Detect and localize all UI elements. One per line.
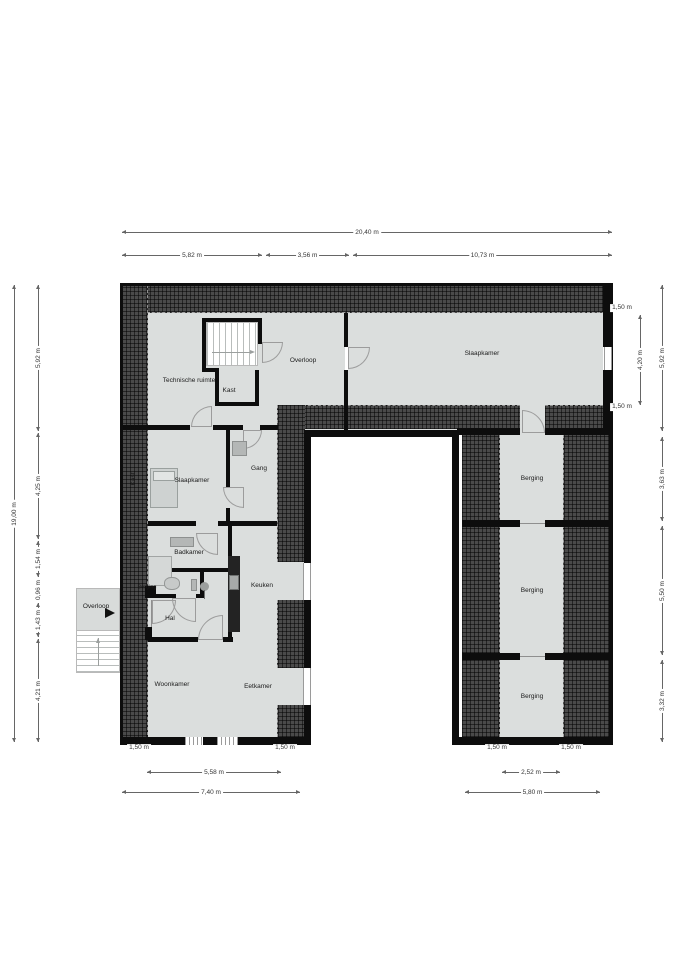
wall bbox=[344, 370, 348, 430]
room-label: Berging bbox=[521, 476, 543, 483]
wall bbox=[603, 285, 612, 347]
room-label: Badkamer bbox=[174, 550, 204, 557]
dimension-label: 5,58 m bbox=[202, 769, 226, 777]
stairs-arrow-head-icon bbox=[250, 350, 255, 354]
dimension-arrow-icon bbox=[36, 535, 40, 539]
wall bbox=[226, 430, 230, 487]
dimension-arrow-icon bbox=[36, 633, 40, 637]
room-label: Woonkamer bbox=[155, 682, 190, 689]
dimension-arrow-icon bbox=[36, 541, 40, 545]
stairs-direction-arrow bbox=[212, 352, 250, 353]
wall bbox=[215, 402, 259, 406]
wall bbox=[255, 370, 259, 406]
room-label: Gang bbox=[251, 466, 267, 473]
dimension-label: 1,43 m bbox=[35, 608, 43, 632]
dimension-arrow-icon bbox=[122, 253, 126, 257]
room-label: Technische ruimte bbox=[163, 378, 215, 385]
dimension-arrow-icon bbox=[660, 651, 664, 655]
dimension-arrow-icon bbox=[36, 573, 40, 577]
door-leaf-line bbox=[520, 656, 545, 657]
wall bbox=[452, 430, 459, 745]
dimension-arrow-icon bbox=[296, 790, 300, 794]
dimension-arrow-icon bbox=[36, 738, 40, 742]
room-label: Slaapkamer bbox=[175, 478, 210, 485]
wall bbox=[218, 521, 277, 526]
dimension-label: 3,56 m bbox=[296, 252, 320, 260]
stairs-arrow-head-icon bbox=[96, 638, 100, 643]
room-label: Eetkamer bbox=[244, 684, 272, 691]
room-label: Berging bbox=[521, 694, 543, 701]
dimension-label: 0,96 m bbox=[35, 578, 43, 602]
wall bbox=[305, 430, 455, 437]
room-label: Kast bbox=[222, 388, 235, 395]
dimension-arrow-icon bbox=[660, 526, 664, 530]
floor-plan-canvas: Technische ruimteKastOverloopSlaapkamerK… bbox=[0, 0, 679, 960]
dimension-label: 5,50 m bbox=[659, 579, 667, 603]
dimension-label: 3,63 m bbox=[659, 467, 667, 491]
dimension-arrow-icon bbox=[266, 253, 270, 257]
dimension-arrow-icon bbox=[638, 315, 642, 319]
dimension-label: 1,54 m bbox=[35, 547, 43, 571]
wall bbox=[215, 370, 219, 406]
dimension-text: 1,50 m bbox=[485, 744, 509, 752]
dimension-label: 4,20 m bbox=[637, 348, 645, 372]
room-label: Slaapkamer bbox=[465, 351, 500, 358]
dimension-label: 5,82 m bbox=[180, 252, 204, 260]
wall bbox=[148, 637, 198, 642]
room-label: Berging bbox=[521, 588, 543, 595]
dimension-text: 1,50 m bbox=[273, 744, 297, 752]
low-headroom-hatch bbox=[563, 435, 610, 737]
dimension-text: 1,50 m bbox=[610, 304, 634, 312]
dimension-label: 5,92 m bbox=[659, 346, 667, 370]
wall bbox=[457, 428, 520, 435]
window bbox=[303, 668, 311, 705]
dimension-arrow-icon bbox=[258, 253, 262, 257]
dimension-label: 7,40 m bbox=[199, 789, 223, 797]
dimension-arrow-icon bbox=[660, 517, 664, 521]
low-headroom-hatch bbox=[277, 705, 305, 737]
wall bbox=[223, 637, 233, 642]
dimension-text: 1,50 m bbox=[610, 403, 634, 411]
low-headroom-hatch bbox=[122, 285, 148, 740]
dimension-arrow-icon bbox=[608, 253, 612, 257]
dimension-arrow-icon bbox=[353, 253, 357, 257]
wall bbox=[120, 283, 612, 286]
dimension-arrow-icon bbox=[596, 790, 600, 794]
dimension-arrow-icon bbox=[608, 230, 612, 234]
dimension-arrow-icon bbox=[36, 285, 40, 289]
dimension-text: 1,50 m bbox=[127, 744, 151, 752]
wall bbox=[462, 653, 520, 660]
window bbox=[303, 563, 311, 600]
wall bbox=[545, 428, 610, 435]
wall bbox=[260, 425, 278, 430]
wall bbox=[120, 283, 123, 745]
dimension-arrow-icon bbox=[660, 427, 664, 431]
dimension-arrow-icon bbox=[12, 738, 16, 742]
dimension-label: 5,80 m bbox=[521, 789, 545, 797]
dimension-arrow-icon bbox=[660, 660, 664, 664]
furniture-cabinet bbox=[232, 441, 247, 456]
furniture-pedestal-stem bbox=[204, 590, 205, 599]
dimension-label: 19,00 m bbox=[11, 500, 19, 528]
room-label: Keuken bbox=[251, 583, 273, 590]
room-label: Kast bbox=[131, 472, 138, 485]
door-leaf-line bbox=[520, 523, 545, 524]
dimension-arrow-icon bbox=[556, 770, 560, 774]
dimension-arrow-icon bbox=[660, 738, 664, 742]
window bbox=[185, 737, 203, 745]
wall bbox=[304, 430, 311, 563]
dimension-label: 4,21 m bbox=[35, 679, 43, 703]
dimension-arrow-icon bbox=[660, 437, 664, 441]
dimension-arrow-icon bbox=[122, 230, 126, 234]
dimension-arrow-icon bbox=[660, 285, 664, 289]
dimension-text: 1,50 m bbox=[559, 744, 583, 752]
wall bbox=[462, 520, 520, 527]
furniture-stove bbox=[229, 575, 239, 590]
room-label: Berging bbox=[138, 585, 157, 591]
dimension-label: 5,92 m bbox=[35, 346, 43, 370]
low-headroom-hatch bbox=[277, 405, 305, 562]
room-label: Overloop bbox=[290, 358, 316, 365]
wall bbox=[545, 653, 610, 660]
dimension-label: 20,40 m bbox=[353, 229, 381, 237]
furniture-pillow bbox=[153, 471, 175, 481]
low-headroom-hatch bbox=[277, 600, 305, 668]
window bbox=[604, 347, 612, 370]
dimension-arrow-icon bbox=[36, 603, 40, 607]
wall bbox=[545, 520, 610, 527]
dimension-arrow-icon bbox=[36, 427, 40, 431]
wall bbox=[344, 313, 348, 347]
room-label: Hal bbox=[165, 616, 175, 623]
dimension-arrow-icon bbox=[502, 770, 506, 774]
wall bbox=[226, 508, 230, 522]
low-headroom-hatch bbox=[122, 285, 610, 313]
wall bbox=[603, 370, 612, 430]
furniture-toilet-sink bbox=[191, 579, 197, 591]
dimension-label: 3,32 m bbox=[659, 689, 667, 713]
dimension-label: 2,52 m bbox=[519, 769, 543, 777]
dimension-label: 4,25 m bbox=[35, 474, 43, 498]
wall bbox=[304, 705, 311, 745]
wall bbox=[145, 627, 152, 640]
wall bbox=[455, 737, 612, 745]
dimension-arrow-icon bbox=[638, 401, 642, 405]
low-headroom-hatch bbox=[278, 405, 520, 429]
window bbox=[217, 737, 238, 745]
furniture-kitchen-counter bbox=[228, 556, 240, 632]
dimension-arrow-icon bbox=[36, 433, 40, 437]
dimension-arrow-icon bbox=[465, 790, 469, 794]
dimension-arrow-icon bbox=[345, 253, 349, 257]
dimension-arrow-icon bbox=[277, 770, 281, 774]
wall bbox=[304, 600, 311, 668]
dimension-arrow-icon bbox=[12, 285, 16, 289]
stairs bbox=[206, 322, 258, 366]
room-label: Overloop bbox=[83, 604, 109, 611]
low-headroom-hatch bbox=[462, 435, 500, 737]
dimension-label: 10,73 m bbox=[469, 252, 497, 260]
furniture-toilet bbox=[164, 577, 180, 590]
wall bbox=[122, 425, 190, 430]
dimension-arrow-icon bbox=[147, 770, 151, 774]
dimension-arrow-icon bbox=[36, 639, 40, 643]
low-headroom-hatch bbox=[545, 405, 603, 429]
furniture-sink bbox=[170, 537, 194, 547]
wall bbox=[148, 521, 196, 526]
wall bbox=[258, 318, 262, 344]
dimension-arrow-icon bbox=[122, 790, 126, 794]
